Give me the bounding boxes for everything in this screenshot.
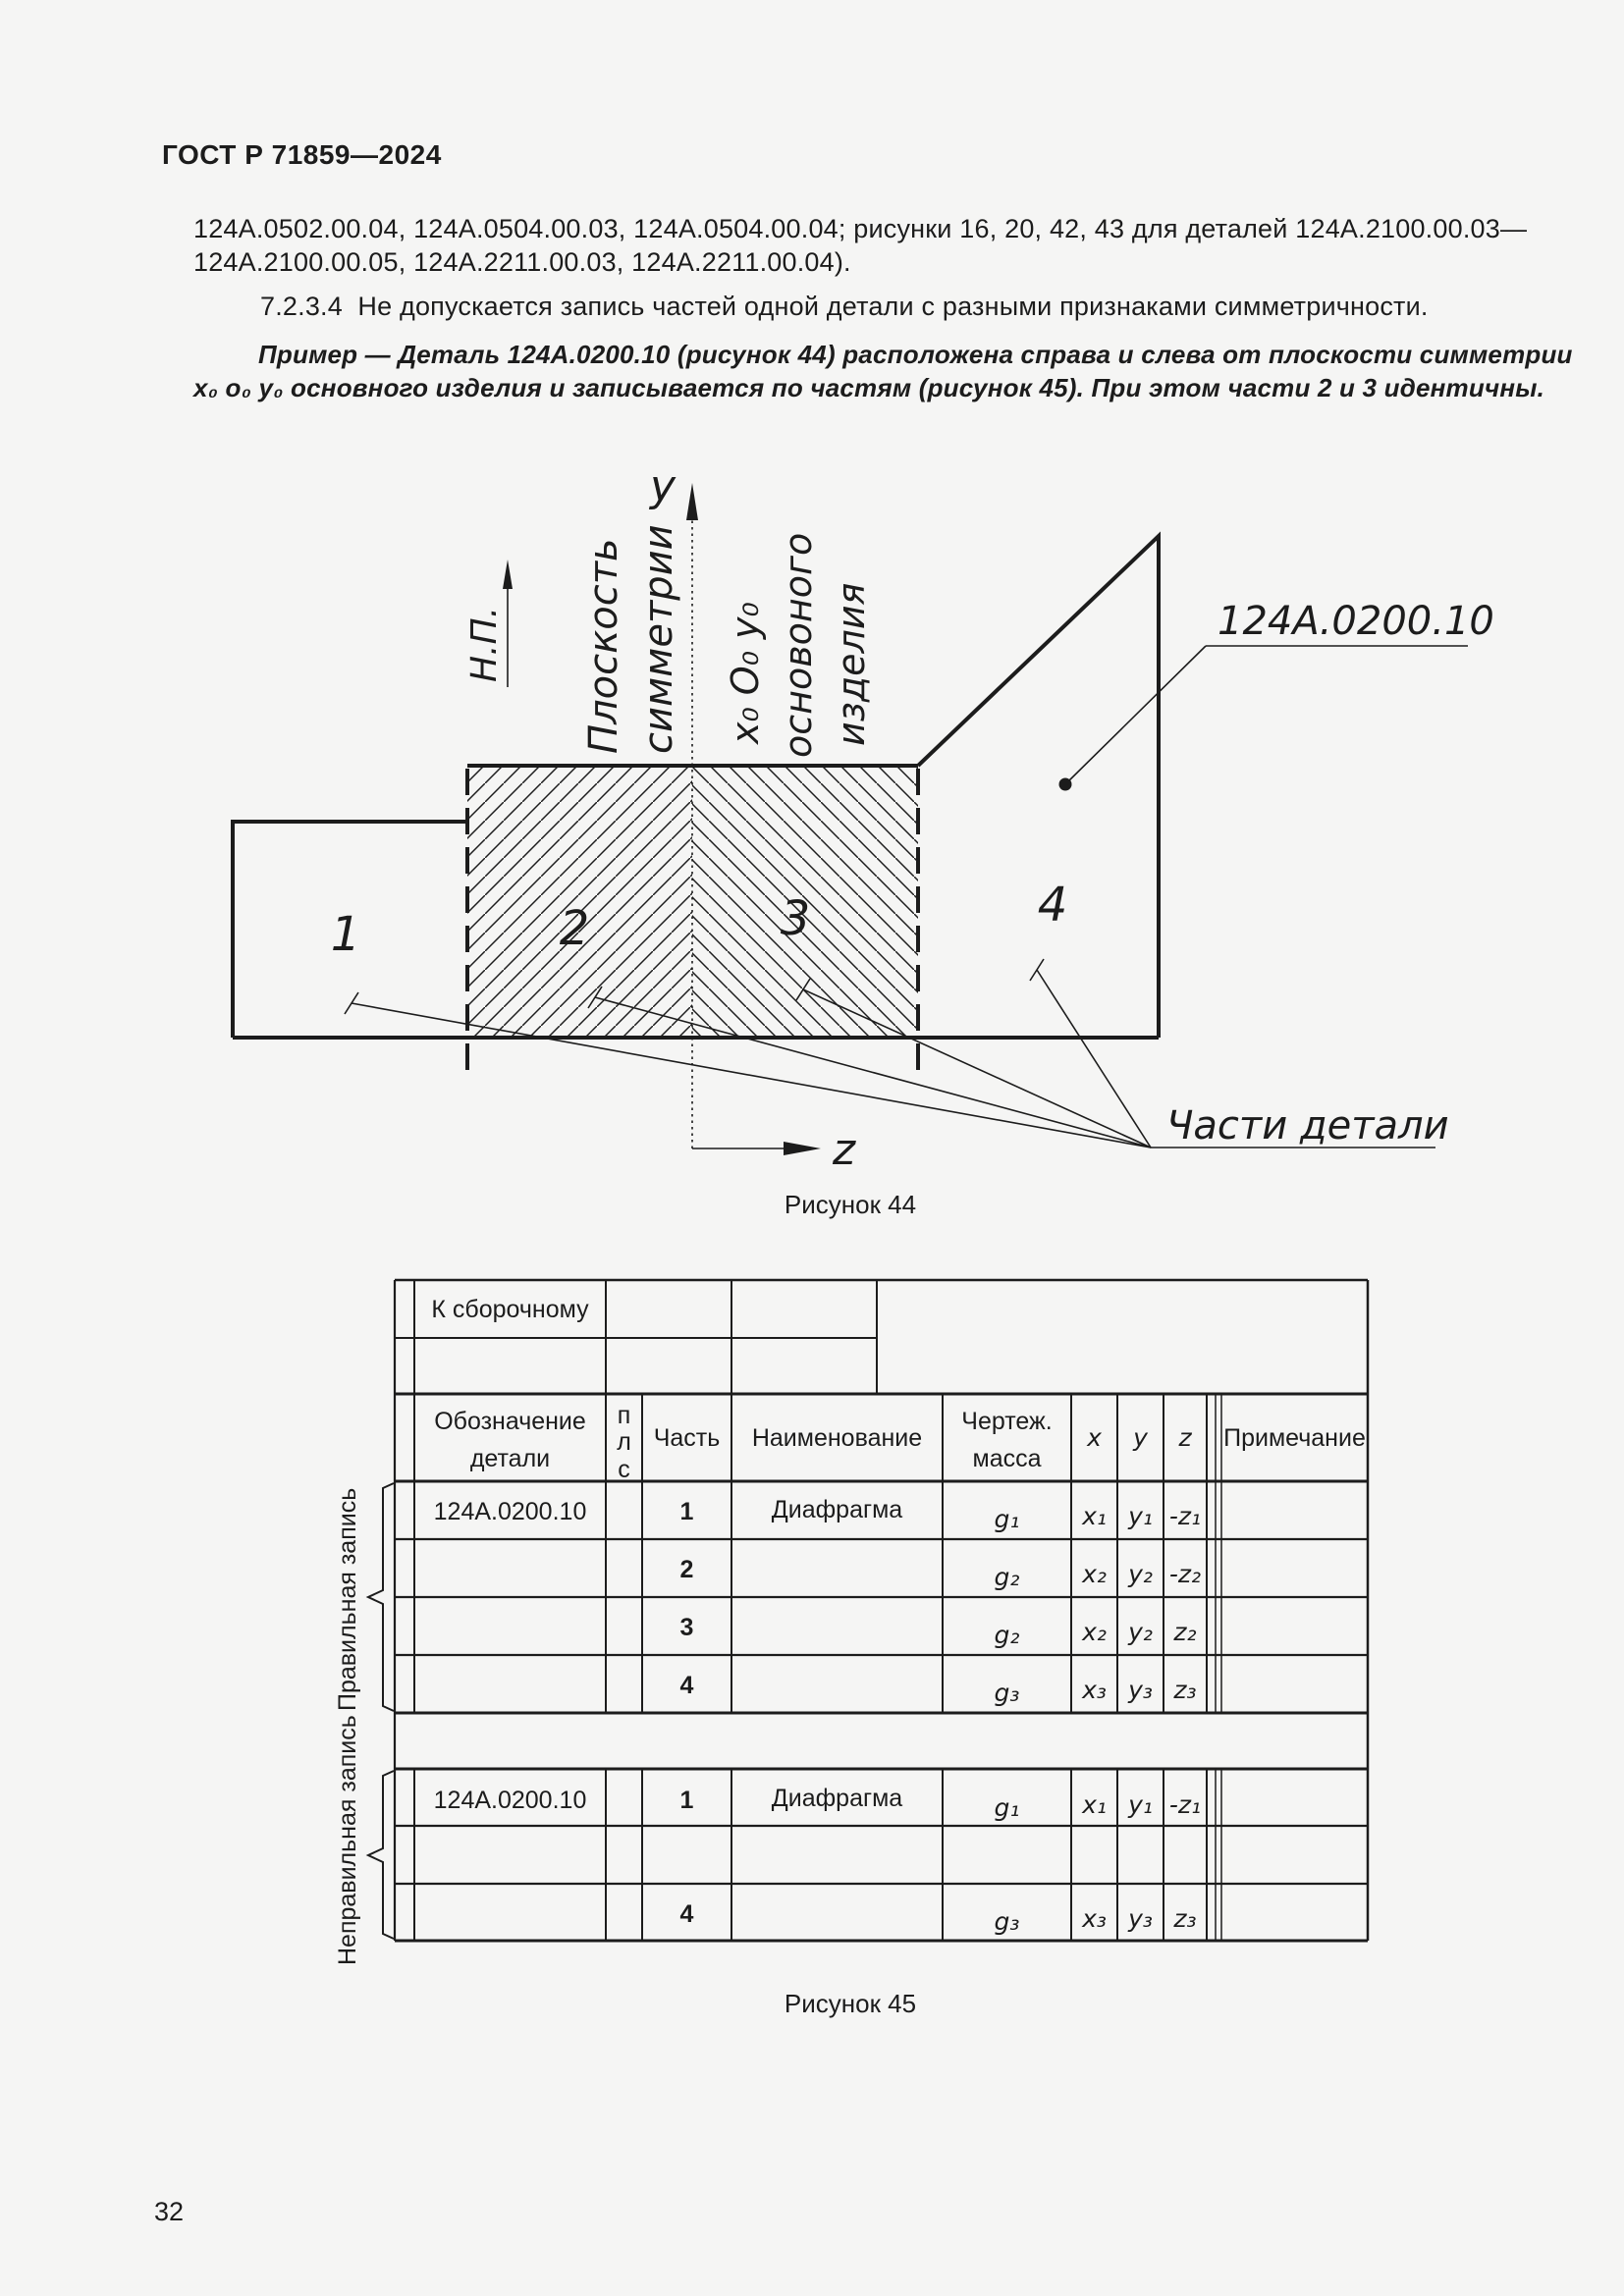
page-number: 32 bbox=[154, 2197, 184, 2227]
cell-x: x₂ bbox=[1081, 1560, 1107, 1588]
z-axis-arrowhead bbox=[784, 1142, 821, 1155]
part-designation-label: 124А.0200.10 bbox=[1218, 599, 1494, 644]
cell-x: x₁ bbox=[1081, 1502, 1107, 1530]
cell-part: 4 bbox=[680, 1900, 694, 1928]
table-texts: К сборочному Обозначение детали п л с Ча… bbox=[431, 1296, 1365, 1936]
leader-part3 bbox=[803, 989, 1151, 1148]
cell-y: y₁ bbox=[1127, 1502, 1153, 1530]
cell-part: 2 bbox=[680, 1556, 694, 1583]
cell-mass: g₃ bbox=[995, 1679, 1020, 1707]
part3-number: 3 bbox=[781, 891, 811, 946]
table-grid bbox=[395, 1280, 1368, 1941]
cell-z: -z₁ bbox=[1169, 1790, 1201, 1819]
cell-mass: g₁ bbox=[995, 1793, 1020, 1822]
cell-z: z₃ bbox=[1172, 1904, 1196, 1933]
cell-z: -z₁ bbox=[1169, 1502, 1201, 1530]
cell-x: x₃ bbox=[1081, 1904, 1107, 1933]
header-part: Часть bbox=[654, 1424, 721, 1452]
header-pls-l: л bbox=[617, 1428, 631, 1456]
cell-y: y₁ bbox=[1127, 1790, 1153, 1819]
cell-part: 3 bbox=[680, 1614, 694, 1641]
figures-canvas: y z Н.П. Плоскость симметрии x₀ O₀ y₀ ос… bbox=[0, 0, 1624, 2296]
cell-designation: 124А.0200.10 bbox=[434, 1498, 587, 1525]
figure-44-drawing: y z Н.П. Плоскость симметрии x₀ O₀ y₀ ос… bbox=[233, 461, 1494, 1175]
group1-rotated-label: Правильная запись bbox=[334, 1488, 361, 1711]
cell-y: y₃ bbox=[1127, 1676, 1153, 1704]
cell-part: 1 bbox=[680, 1498, 694, 1525]
parts-of-detail-label: Части детали bbox=[1166, 1103, 1449, 1148]
part4-outline bbox=[918, 536, 1159, 1038]
cell-z: z₃ bbox=[1172, 1676, 1196, 1704]
np-arrowhead bbox=[503, 560, 513, 589]
part4-number: 4 bbox=[1038, 878, 1068, 933]
cell-y: y₂ bbox=[1127, 1560, 1153, 1588]
cell-mass: g₃ bbox=[995, 1907, 1020, 1936]
hatched-regions bbox=[467, 766, 918, 1038]
designation-dot bbox=[1059, 778, 1072, 791]
header-designation-l2: детали bbox=[470, 1445, 550, 1472]
figure-45-caption: Рисунок 45 bbox=[605, 1989, 1096, 2019]
origin-label-line2: основоного bbox=[777, 533, 820, 758]
cell-mass: g₂ bbox=[995, 1621, 1020, 1649]
cell-designation: 124А.0200.10 bbox=[434, 1787, 587, 1814]
document-page: ГОСТ Р 71859—2024 124А.0502.00.04, 124А.… bbox=[0, 0, 1624, 2296]
y-axis-arrowhead bbox=[686, 483, 698, 520]
header-designation-l1: Обозначение bbox=[434, 1408, 586, 1435]
origin-label-line3: изделия bbox=[830, 583, 873, 746]
cell-mass: g₂ bbox=[995, 1563, 1020, 1591]
header-pls-s: с bbox=[618, 1456, 630, 1483]
cell-part: 4 bbox=[680, 1672, 694, 1699]
group-brackets bbox=[368, 1483, 394, 1939]
part1-number: 1 bbox=[331, 907, 361, 962]
designation-leader bbox=[1065, 646, 1206, 784]
cell-x: x₁ bbox=[1081, 1790, 1107, 1819]
leader-tick bbox=[345, 992, 358, 1014]
origin-label-line1: x₀ O₀ y₀ bbox=[724, 602, 767, 745]
header-z: z bbox=[1177, 1423, 1192, 1452]
header-note: Примечание bbox=[1223, 1424, 1366, 1452]
y-axis-label: y bbox=[648, 461, 677, 511]
symmetry-plane-label-line2: симметрии bbox=[636, 524, 681, 754]
header-name: Наименование bbox=[752, 1424, 922, 1452]
cell-y: y₂ bbox=[1127, 1618, 1153, 1646]
figure-45-table: Правильная запись Неправильная запись К … bbox=[334, 1280, 1368, 1965]
z-axis-label: z bbox=[832, 1125, 856, 1175]
cell-z: z₂ bbox=[1172, 1618, 1196, 1646]
cell-part: 1 bbox=[680, 1787, 694, 1814]
header-x: x bbox=[1086, 1423, 1102, 1452]
np-label: Н.П. bbox=[464, 607, 505, 682]
header-pls-p: п bbox=[618, 1402, 631, 1429]
top-band-label: К сборочному bbox=[431, 1296, 589, 1323]
header-mass-l2: масса bbox=[973, 1445, 1042, 1472]
group2-rotated-label: Неправильная запись bbox=[334, 1715, 361, 1965]
cell-name: Диафрагма bbox=[772, 1785, 902, 1812]
cell-mass: g₁ bbox=[995, 1505, 1020, 1533]
symmetry-plane-label-line1: Плоскость bbox=[581, 538, 626, 754]
cell-x: x₃ bbox=[1081, 1676, 1107, 1704]
bracket-incorrect-group bbox=[368, 1771, 394, 1939]
header-y: y bbox=[1132, 1423, 1149, 1452]
cell-name: Диафрагма bbox=[772, 1496, 902, 1523]
part2-number: 2 bbox=[560, 901, 590, 956]
bracket-correct-group bbox=[368, 1483, 394, 1711]
header-mass-l1: Чертеж. bbox=[961, 1408, 1052, 1435]
cell-z: -z₂ bbox=[1169, 1560, 1201, 1588]
cell-x: x₂ bbox=[1081, 1618, 1107, 1646]
figure-44-caption: Рисунок 44 bbox=[605, 1190, 1096, 1220]
cell-y: y₃ bbox=[1127, 1904, 1153, 1933]
